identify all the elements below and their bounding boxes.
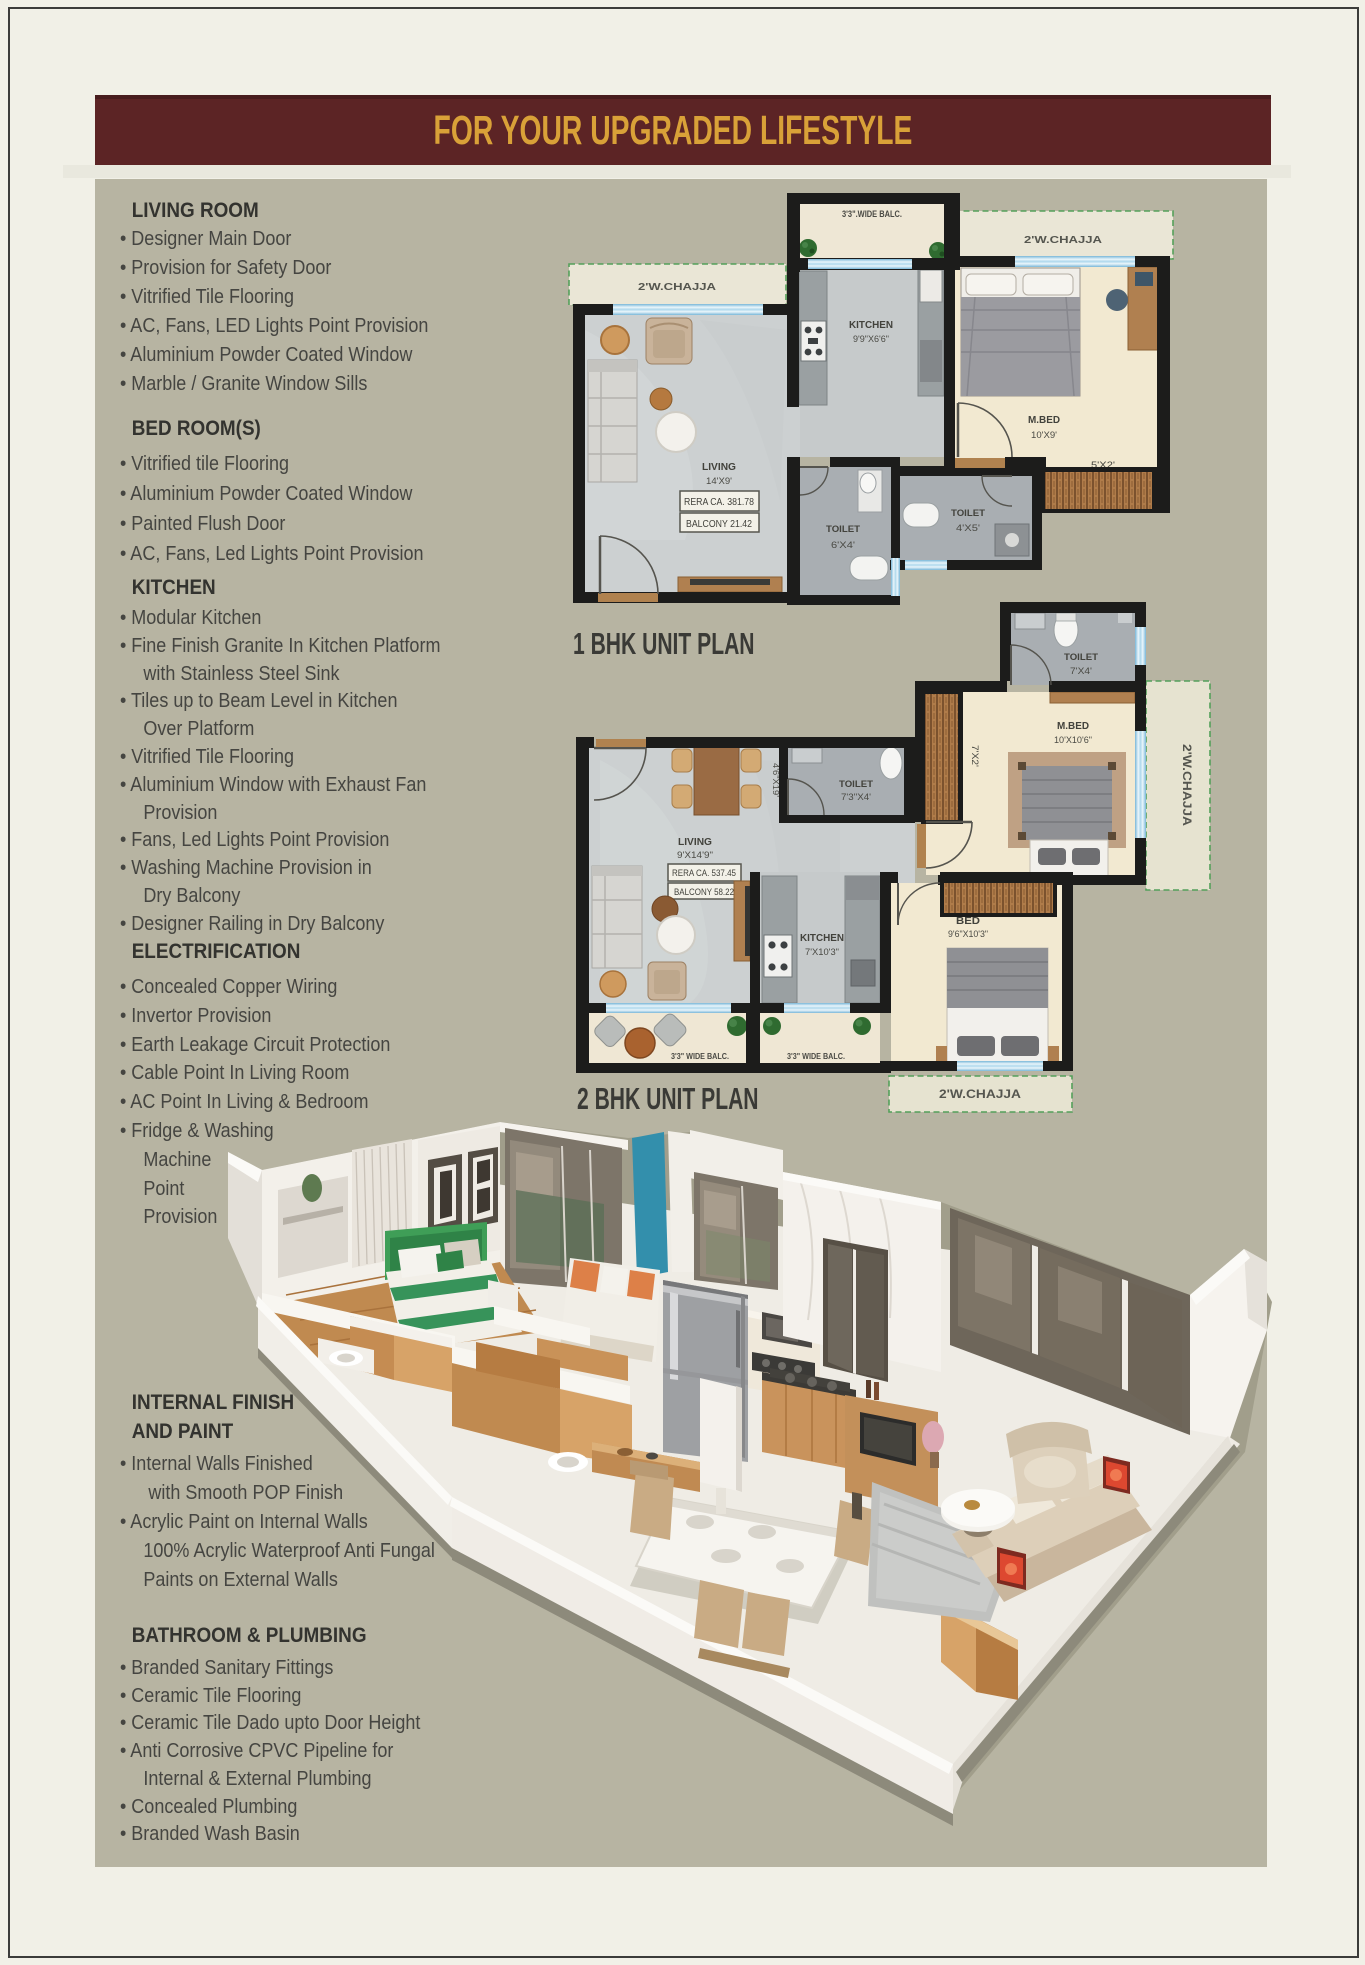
svg-text:M.BED: M.BED — [1057, 720, 1089, 732]
svg-text:7'X4': 7'X4' — [1070, 666, 1092, 676]
svg-text:BALCONY 58.22: BALCONY 58.22 — [674, 887, 734, 898]
svg-text:KITCHEN: KITCHEN — [849, 319, 893, 331]
svg-text:RERA CA. 381.78: RERA CA. 381.78 — [684, 497, 754, 508]
svg-text:3'3" WIDE BALC.: 3'3" WIDE BALC. — [671, 1051, 729, 1061]
svg-text:2'W.CHAJJA: 2'W.CHAJJA — [1024, 235, 1102, 246]
svg-text:3'3".WIDE BALC.: 3'3".WIDE BALC. — [842, 209, 902, 219]
svg-text:TOILET: TOILET — [826, 524, 860, 535]
svg-text:7'3"X4': 7'3"X4' — [841, 792, 871, 802]
svg-text:6'X4': 6'X4' — [831, 540, 855, 550]
svg-text:3'3" WIDE BALC.: 3'3" WIDE BALC. — [787, 1051, 845, 1061]
svg-text:LIVING: LIVING — [678, 836, 712, 848]
svg-text:10'X9': 10'X9' — [1031, 430, 1057, 440]
svg-text:TOILET: TOILET — [839, 779, 873, 790]
svg-text:2'W.CHAJJA: 2'W.CHAJJA — [638, 282, 716, 293]
svg-text:M.BED: M.BED — [1028, 414, 1060, 426]
svg-text:7'X10'3": 7'X10'3" — [805, 947, 839, 957]
svg-text:BALCONY 21.42: BALCONY 21.42 — [686, 519, 752, 530]
svg-text:RERA CA. 537.45: RERA CA. 537.45 — [672, 868, 736, 879]
svg-text:7'X2': 7'X2' — [970, 745, 980, 767]
svg-text:9'X14'9": 9'X14'9" — [677, 850, 713, 860]
svg-text:TOILET: TOILET — [951, 508, 985, 519]
svg-text:LIVING: LIVING — [702, 461, 736, 473]
svg-text:KITCHEN: KITCHEN — [800, 932, 844, 944]
svg-text:TOILET: TOILET — [1064, 652, 1098, 663]
svg-text:2'W.CHAJJA: 2'W.CHAJJA — [1180, 744, 1194, 826]
svg-text:14'X9': 14'X9' — [706, 476, 732, 486]
svg-text:9'9"X6'6": 9'9"X6'6" — [853, 334, 889, 344]
svg-text:9'6"X10'3": 9'6"X10'3" — [948, 929, 988, 939]
svg-text:4'X5': 4'X5' — [956, 523, 980, 533]
svg-text:10'X10'6": 10'X10'6" — [1054, 735, 1092, 745]
